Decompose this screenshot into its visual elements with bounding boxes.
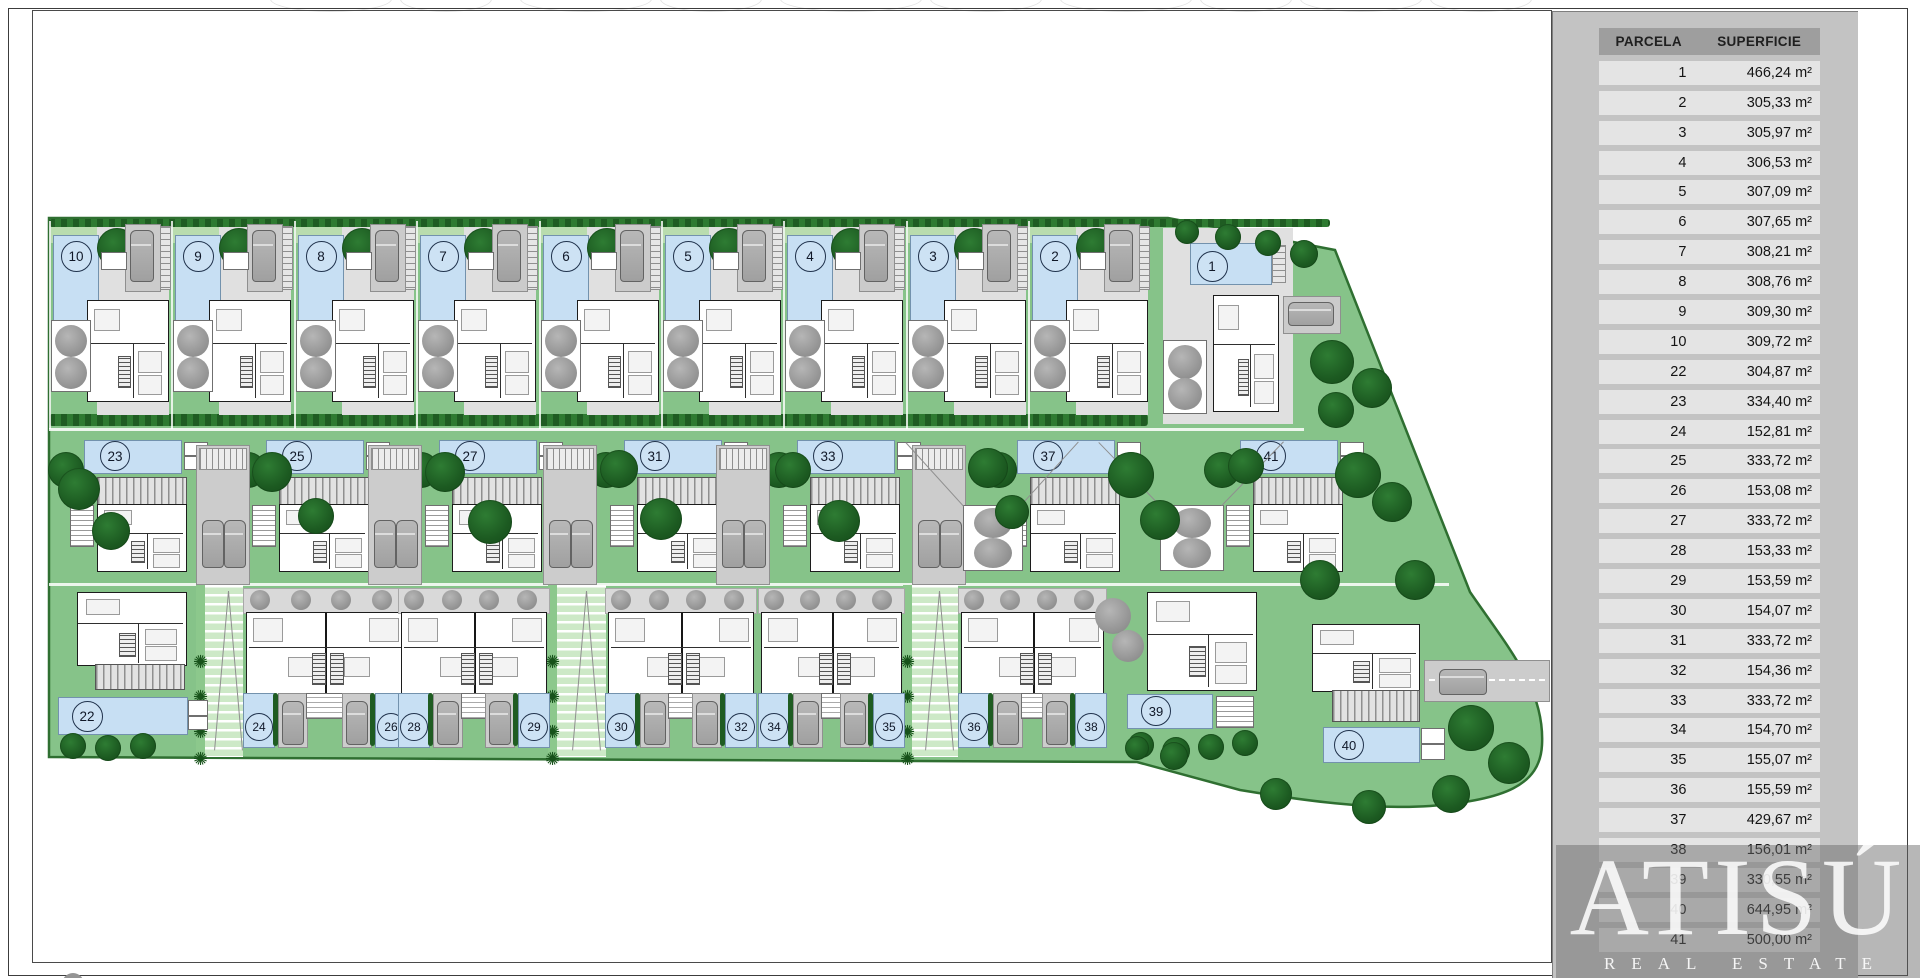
car-windshield — [438, 713, 456, 715]
car-windshield — [621, 244, 641, 246]
townhouse — [961, 612, 1104, 697]
table-header-superficie: SUPERFICIE — [1698, 34, 1820, 49]
utility-box — [188, 700, 208, 716]
driveway — [543, 445, 597, 585]
bed-icon — [1309, 538, 1336, 553]
sofa-icon — [584, 309, 610, 331]
table-row: 29153,59 m² — [1599, 569, 1820, 593]
car-windshield — [798, 713, 816, 715]
bed-icon — [866, 538, 893, 553]
tree-icon — [58, 468, 100, 510]
parcela-cell: 6 — [1599, 214, 1698, 230]
bed-icon — [508, 554, 535, 568]
sofa-icon — [216, 309, 242, 331]
bed-icon — [1254, 381, 1274, 404]
superficie-cell: 429,67 m² — [1698, 812, 1820, 828]
car-icon — [130, 230, 154, 282]
table-row: 34154,70 m² — [1599, 718, 1820, 742]
tree-strip — [958, 588, 1107, 614]
superficie-cell: 153,08 m² — [1698, 483, 1820, 499]
car-windshield — [550, 533, 568, 535]
tree-icon — [1448, 705, 1494, 751]
stairs-icon — [783, 505, 807, 547]
stairs-icon — [160, 226, 171, 290]
house-wall — [623, 343, 624, 398]
stairs-icon — [975, 356, 988, 388]
stairs-icon — [772, 226, 783, 290]
car-icon — [346, 701, 368, 745]
tree-icon — [1290, 240, 1318, 268]
pool — [624, 440, 722, 474]
bed-icon — [138, 375, 162, 395]
house-wall — [764, 647, 899, 648]
gray-tree-icon — [517, 590, 537, 610]
parcela-cell: 34 — [1599, 722, 1698, 738]
car-windshield — [203, 533, 221, 535]
parcela-cell: 33 — [1599, 693, 1698, 709]
patio-table-icon — [346, 252, 372, 270]
walkway: ✺✺✺✺ — [548, 585, 606, 757]
house — [77, 592, 187, 666]
parcela-cell: 32 — [1599, 663, 1698, 679]
gray-tree-icon — [404, 590, 424, 610]
house-wall — [378, 343, 379, 398]
house-wall — [133, 343, 134, 398]
bed-icon — [1379, 674, 1411, 688]
villa-plot: 4 — [783, 218, 905, 430]
bed-icon — [153, 538, 180, 553]
house — [821, 300, 903, 402]
house-wall — [147, 533, 148, 569]
bed-icon — [253, 618, 283, 642]
ramp-line — [228, 591, 243, 751]
bed-icon — [995, 375, 1019, 395]
table-row: 3305,97 m² — [1599, 121, 1820, 145]
gray-tree-icon — [55, 357, 87, 389]
table-row: 36155,59 m² — [1599, 778, 1820, 802]
tree-icon — [1255, 230, 1281, 256]
parcela-cell: 5 — [1599, 184, 1698, 200]
bed-icon — [968, 618, 998, 642]
patio-table-icon — [468, 252, 494, 270]
table-row: 26153,08 m² — [1599, 479, 1820, 503]
car-icon — [1288, 302, 1334, 326]
townhouse — [401, 612, 547, 697]
tree-icon — [1372, 482, 1412, 522]
tree-strip — [605, 588, 757, 614]
house-wall — [687, 533, 688, 569]
patio-table-icon — [958, 252, 984, 270]
courtyard — [173, 320, 213, 392]
courtyard — [296, 320, 336, 392]
stairs-icon — [282, 226, 293, 290]
plot-number-badge: 36 — [960, 713, 988, 741]
sofa-icon — [1320, 630, 1354, 645]
house — [699, 300, 781, 402]
walkway: ✺✺✺✺ — [903, 585, 958, 757]
bed-icon — [1379, 658, 1411, 673]
stairs-icon — [313, 541, 327, 563]
superficie-cell: 153,59 m² — [1698, 573, 1820, 589]
tree-icon — [1310, 340, 1354, 384]
sofa-icon — [1073, 309, 1099, 331]
crosswalk — [719, 448, 767, 470]
bed-icon — [335, 554, 362, 568]
house-wall — [255, 343, 256, 398]
plot-number-badge: 23 — [100, 441, 130, 471]
gray-tree-icon — [667, 325, 699, 357]
plot-number-badge: 4 — [795, 241, 826, 272]
ramp-line — [586, 591, 601, 751]
tree-strip — [758, 588, 905, 614]
car-windshield — [131, 244, 151, 246]
tree-strip — [243, 588, 407, 614]
car-icon — [282, 701, 304, 745]
table-row: 33333,72 m² — [1599, 689, 1820, 713]
stairs-icon — [668, 693, 694, 719]
bed-icon — [995, 351, 1019, 373]
stairs-icon — [1021, 693, 1044, 719]
superficie-cell: 304,87 m² — [1698, 364, 1820, 380]
parcela-cell: 1 — [1599, 65, 1698, 81]
house-wall — [745, 343, 746, 398]
table-header: PARCELA SUPERFICIE — [1599, 28, 1820, 55]
stairs-icon — [240, 356, 253, 388]
house-wall — [210, 343, 287, 344]
brand-watermark: ATISÚ REAL ESTATE — [1556, 845, 1920, 978]
townhouse-block: 2426 — [243, 588, 405, 757]
car-windshield — [225, 533, 243, 535]
table-row: 35155,07 m² — [1599, 748, 1820, 772]
table-row: 28153,33 m² — [1599, 539, 1820, 563]
tree-icon — [600, 450, 638, 488]
pool — [84, 440, 182, 474]
bed-icon — [867, 618, 897, 642]
stairs-icon — [1064, 541, 1078, 563]
stairs-icon — [131, 541, 145, 563]
car-icon — [987, 230, 1011, 282]
stairs-icon — [119, 633, 136, 657]
villa-plot: 22 — [49, 588, 199, 757]
gray-tree-icon — [422, 325, 454, 357]
tree-icon — [60, 733, 86, 759]
bed-icon — [1086, 554, 1113, 568]
courtyard — [418, 320, 458, 392]
car-windshield — [745, 533, 763, 535]
house — [1066, 300, 1148, 402]
house-wall — [1067, 343, 1144, 344]
parcela-cell: 26 — [1599, 483, 1698, 499]
courtyard — [541, 320, 581, 392]
parcela-cell: 24 — [1599, 424, 1698, 440]
gray-tree-icon — [545, 325, 577, 357]
utility-box — [1421, 728, 1445, 744]
table-row: 8308,76 m² — [1599, 270, 1820, 294]
tree-icon — [968, 448, 1008, 488]
parcela-cell: 2 — [1599, 95, 1698, 111]
courtyard — [908, 320, 948, 392]
car-icon — [797, 701, 819, 745]
superficie-cell: 334,40 m² — [1698, 394, 1820, 410]
house-wall — [990, 343, 991, 398]
parcel-table: PARCELA SUPERFICIE 1466,24 m²2305,33 m²3… — [1599, 28, 1820, 952]
stairs-icon — [819, 653, 833, 685]
bed-icon — [719, 618, 749, 642]
superficie-cell: 308,21 m² — [1698, 244, 1820, 260]
car-icon — [696, 701, 718, 745]
pool — [797, 440, 895, 474]
car-icon — [742, 230, 766, 282]
car-windshield — [865, 244, 885, 246]
tree-icon — [1228, 448, 1264, 484]
tree-icon — [1300, 560, 1340, 600]
stairs-icon — [363, 356, 376, 388]
bed-icon — [872, 375, 896, 395]
sofa-icon — [951, 309, 977, 331]
stairs-icon — [312, 653, 326, 685]
house — [87, 300, 169, 402]
gray-tree-icon — [1168, 378, 1202, 410]
table-row: 4306,53 m² — [1599, 151, 1820, 175]
superficie-cell: 306,53 m² — [1698, 155, 1820, 171]
car-windshield — [1440, 676, 1484, 678]
bed-icon — [260, 375, 284, 395]
stairs-icon — [650, 226, 661, 290]
superficie-cell: 466,24 m² — [1698, 65, 1820, 81]
parcela-cell: 8 — [1599, 274, 1698, 290]
ramp-line — [214, 591, 229, 751]
table-row: 27333,72 m² — [1599, 509, 1820, 533]
gray-tree-icon — [1173, 538, 1211, 568]
townhouse — [608, 612, 754, 697]
driveway — [196, 445, 250, 585]
stairs-icon — [608, 356, 621, 388]
parcel-panel: PARCELA SUPERFICIE 1466,24 m²2305,33 m²3… — [1552, 11, 1858, 978]
house-wall — [1254, 533, 1339, 534]
stairs-icon — [485, 356, 498, 388]
villa-plot: 5 — [661, 218, 783, 430]
gray-tree-icon — [1037, 590, 1057, 610]
driveway — [912, 445, 966, 585]
house — [1213, 295, 1279, 412]
plot-number-badge: 40 — [1334, 730, 1364, 760]
parcela-cell: 37 — [1599, 812, 1698, 828]
tree-icon — [1488, 742, 1530, 784]
stairs-icon — [1226, 505, 1250, 547]
superficie-cell: 309,72 m² — [1698, 334, 1820, 350]
table-row: 9309,30 m² — [1599, 300, 1820, 324]
tree-icon — [1198, 734, 1224, 760]
parcela-cell: 4 — [1599, 155, 1698, 171]
superficie-cell: 153,33 m² — [1698, 543, 1820, 559]
car-windshield — [645, 713, 663, 715]
superficie-cell: 307,65 m² — [1698, 214, 1820, 230]
tree-icon — [1160, 742, 1188, 770]
bed-icon — [505, 375, 529, 395]
patio-table-icon — [713, 252, 739, 270]
car-windshield — [397, 533, 415, 535]
villa-plot: 1 — [1148, 218, 1348, 428]
plot-number-badge: 32 — [727, 713, 755, 741]
plot-number-badge: 6 — [551, 241, 582, 272]
car-icon — [396, 520, 418, 568]
house-wall — [249, 647, 401, 648]
car-icon — [918, 520, 940, 568]
tree-icon — [1125, 736, 1149, 760]
house-wall — [280, 533, 365, 534]
car-icon — [224, 520, 246, 568]
table-row: 24152,81 m² — [1599, 420, 1820, 444]
gray-tree-icon — [872, 590, 892, 610]
house-wall — [1031, 533, 1116, 534]
sofa-icon — [1218, 305, 1239, 330]
table-row: 2305,33 m² — [1599, 91, 1820, 115]
gray-tree-icon — [300, 357, 332, 389]
sheet: 1098765432123252731333741✺✺✺✺✺✺✺✺✺✺✺✺242… — [0, 0, 1920, 978]
gray-tree-icon — [836, 590, 856, 610]
car-windshield — [988, 244, 1008, 246]
bed-icon — [768, 618, 798, 642]
parcela-cell: 22 — [1599, 364, 1698, 380]
gray-tree-icon — [789, 325, 821, 357]
plot-number-badge: 8 — [306, 241, 337, 272]
gray-tree-icon — [964, 590, 984, 610]
car-windshield — [498, 244, 518, 246]
patio-table-icon — [101, 252, 127, 270]
superficie-cell: 309,30 m² — [1698, 304, 1820, 320]
table-row: 23334,40 m² — [1599, 390, 1820, 414]
tree-icon — [1318, 392, 1354, 428]
gray-tree-icon — [611, 590, 631, 610]
house — [1147, 592, 1257, 691]
table-row: 6307,65 m² — [1599, 210, 1820, 234]
townhouse — [761, 612, 902, 697]
villa-plot: 8 — [294, 218, 416, 430]
tree-icon — [1232, 730, 1258, 756]
stairs-icon — [486, 541, 500, 563]
house-wall — [329, 533, 330, 569]
house-wall — [964, 647, 1101, 648]
tree-icon — [640, 498, 682, 540]
car-windshield — [941, 533, 959, 535]
bed-icon — [628, 351, 652, 373]
stairs-icon — [610, 505, 634, 547]
house-wall — [1208, 634, 1209, 687]
bed-icon — [145, 646, 177, 661]
car-icon — [375, 230, 399, 282]
courtyard — [1163, 340, 1207, 414]
table-icon — [849, 657, 875, 677]
plot-number-badge: 31 — [640, 441, 670, 471]
parcela-cell: 9 — [1599, 304, 1698, 320]
car-windshield — [743, 244, 763, 246]
sofa-icon — [86, 599, 120, 615]
bed-icon — [1254, 354, 1274, 379]
table-row: 10309,72 m² — [1599, 330, 1820, 354]
sofa-icon — [94, 309, 120, 331]
pergola — [1030, 477, 1120, 506]
house — [1030, 504, 1120, 572]
parcela-cell: 30 — [1599, 603, 1698, 619]
car-icon — [864, 230, 888, 282]
gray-tree-icon — [649, 590, 669, 610]
stairs-icon — [1238, 359, 1249, 396]
pergola — [95, 664, 185, 690]
stairs-icon — [668, 653, 682, 685]
car-icon — [844, 701, 866, 745]
superficie-cell: 152,81 m² — [1698, 424, 1820, 440]
gray-tree-icon — [724, 590, 744, 610]
car-icon — [620, 230, 644, 282]
ramp-line — [925, 591, 940, 751]
superficie-cell: 333,72 m² — [1698, 453, 1820, 469]
stairs-icon — [730, 356, 743, 388]
gray-tree-icon — [300, 325, 332, 357]
gray-tree-icon — [912, 357, 944, 389]
table-row: 31333,72 m² — [1599, 629, 1820, 653]
courtyard — [663, 320, 703, 392]
pergola — [1253, 477, 1343, 506]
parcela-cell: 25 — [1599, 453, 1698, 469]
bed-icon — [153, 554, 180, 568]
table-row: 32154,36 m² — [1599, 659, 1820, 683]
ramp-line — [572, 591, 587, 751]
parcela-cell: 35 — [1599, 752, 1698, 768]
townhouse — [246, 612, 404, 697]
gray-tree-icon — [800, 590, 820, 610]
bed-icon — [512, 618, 542, 642]
car-icon — [940, 520, 962, 568]
site-plan: 1098765432123252731333741✺✺✺✺✺✺✺✺✺✺✺✺242… — [0, 0, 1552, 978]
sofa-icon — [1156, 601, 1190, 622]
stairs-icon — [1097, 356, 1110, 388]
villa-plot: 9 — [171, 218, 293, 430]
tree-icon — [425, 452, 465, 492]
tree-icon — [818, 500, 860, 542]
tree-icon — [1352, 368, 1392, 408]
plot-number-badge: 28 — [400, 713, 428, 741]
gray-tree-icon — [177, 357, 209, 389]
house-wall — [1372, 653, 1373, 689]
superficie-cell: 305,33 m² — [1698, 95, 1820, 111]
house-wall — [404, 647, 544, 648]
gray-tree-icon — [686, 590, 706, 610]
house — [454, 300, 536, 402]
car-icon — [997, 701, 1019, 745]
parcela-cell: 23 — [1599, 394, 1698, 410]
parcela-cell: 3 — [1599, 125, 1698, 141]
sofa-icon — [461, 309, 487, 331]
house-wall — [78, 623, 183, 624]
villa-plot: 6 — [539, 218, 661, 430]
stairs-icon — [425, 505, 449, 547]
gray-tree-icon — [974, 538, 1012, 568]
table-row: 5307,09 m² — [1599, 180, 1820, 204]
stairs-icon — [306, 693, 344, 719]
car-windshield — [697, 713, 715, 715]
house-wall — [88, 343, 165, 344]
superficie-cell: 155,07 m² — [1698, 752, 1820, 768]
sofa-icon — [339, 309, 365, 331]
stairs-icon — [821, 693, 842, 719]
table-row: 37429,67 m² — [1599, 808, 1820, 832]
car-windshield — [1289, 309, 1331, 311]
ramp-line — [939, 591, 954, 751]
gray-tree-icon — [1000, 590, 1020, 610]
stairs-icon — [1020, 653, 1034, 685]
tree-icon — [1215, 224, 1241, 250]
car-icon — [1046, 701, 1068, 745]
